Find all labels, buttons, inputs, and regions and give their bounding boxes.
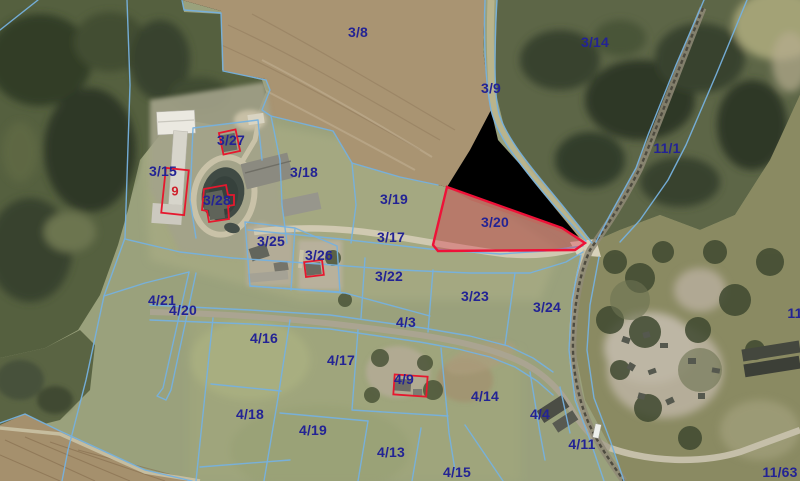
aerial-basemap	[0, 0, 800, 481]
cadastral-map-view[interactable]: 3/20 3/83/143/911/13/273/153/183/283/193…	[0, 0, 800, 481]
